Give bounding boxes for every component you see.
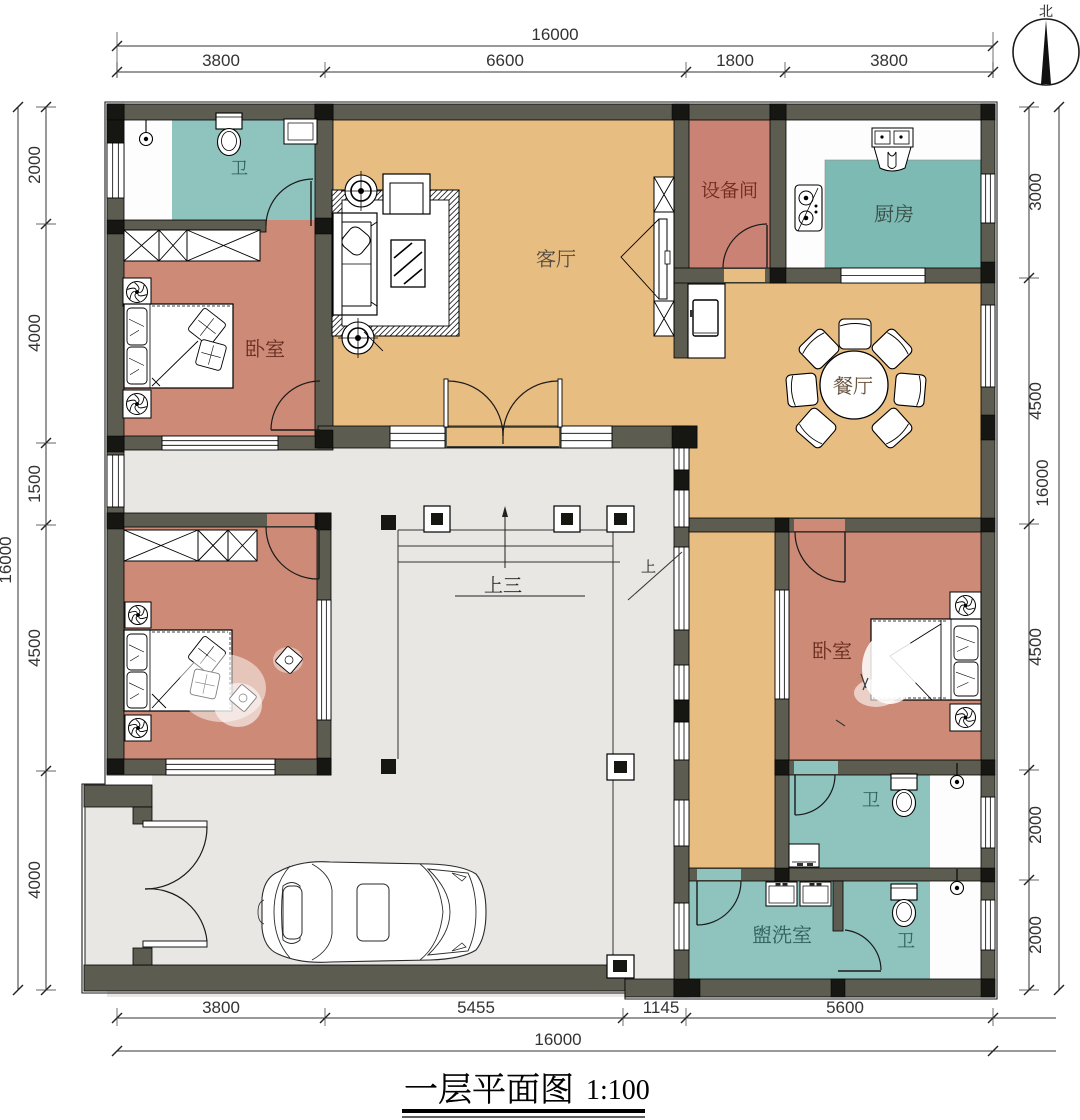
svg-text:4000: 4000 <box>25 861 44 899</box>
svg-text:4000: 4000 <box>25 314 44 352</box>
svg-text:1500: 1500 <box>25 465 44 503</box>
svg-text:4500: 4500 <box>1026 628 1045 666</box>
svg-text:16000: 16000 <box>534 1030 581 1049</box>
svg-text:5455: 5455 <box>457 998 495 1017</box>
svg-text:4500: 4500 <box>25 629 44 667</box>
svg-text:4500: 4500 <box>1026 382 1045 420</box>
svg-text:5600: 5600 <box>826 998 864 1017</box>
svg-text:3800: 3800 <box>202 51 240 70</box>
svg-text:3000: 3000 <box>1026 173 1045 211</box>
svg-text:2000: 2000 <box>1026 806 1045 844</box>
svg-text:3800: 3800 <box>202 998 240 1017</box>
svg-text:1800: 1800 <box>716 51 754 70</box>
svg-text:6600: 6600 <box>486 51 524 70</box>
svg-text:2000: 2000 <box>25 146 44 184</box>
svg-text:16000: 16000 <box>531 25 578 44</box>
svg-text:16000: 16000 <box>0 536 15 583</box>
svg-text:1:100: 1:100 <box>586 1075 650 1106</box>
svg-text:16000: 16000 <box>1033 459 1052 506</box>
svg-text:1145: 1145 <box>643 998 680 1017</box>
svg-text:2000: 2000 <box>1026 916 1045 954</box>
svg-text:3800: 3800 <box>870 51 908 70</box>
